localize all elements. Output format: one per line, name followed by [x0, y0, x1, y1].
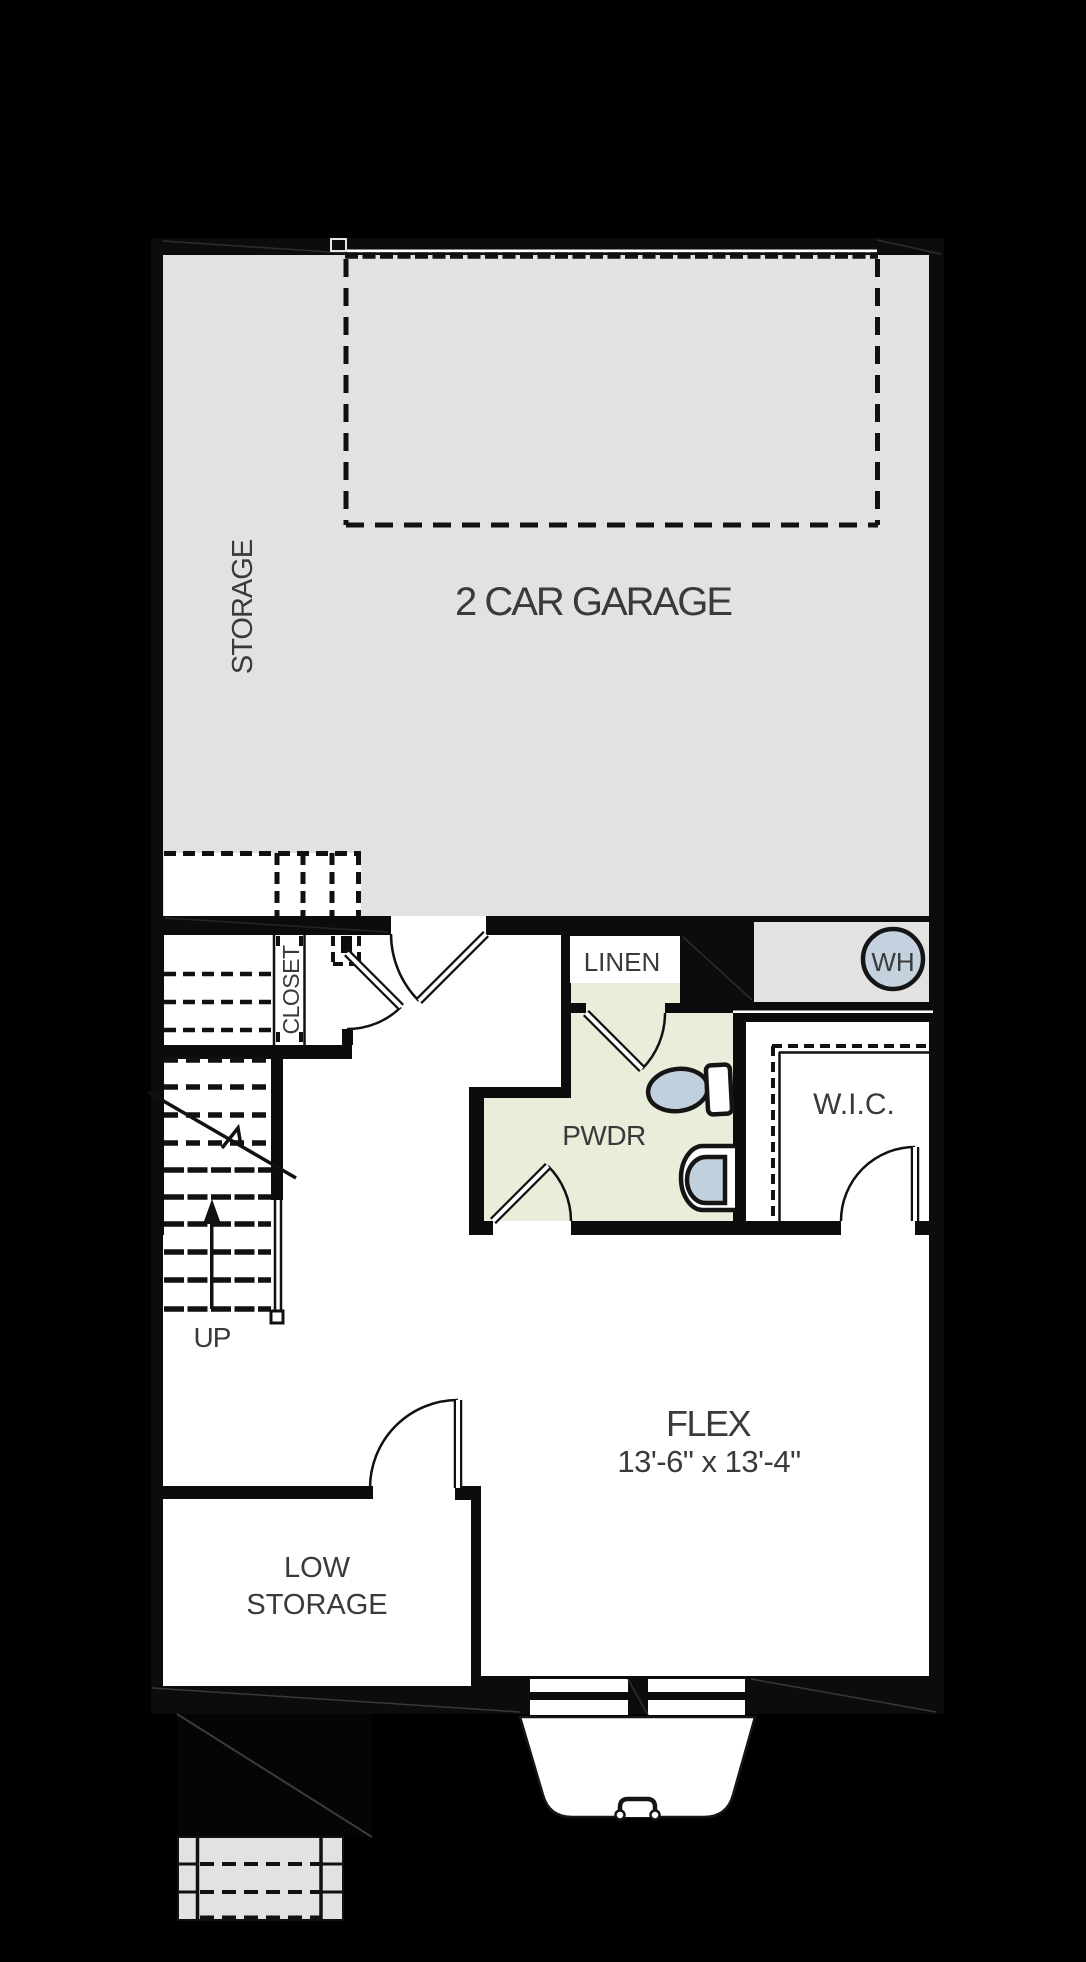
svg-text:W.I.C.: W.I.C.: [813, 1088, 895, 1121]
svg-text:LOW: LOW: [284, 1552, 351, 1584]
svg-text:STORAGE: STORAGE: [227, 539, 259, 674]
svg-text:UP: UP: [194, 1322, 231, 1353]
svg-text:2 CAR GARAGE: 2 CAR GARAGE: [455, 580, 731, 624]
svg-text:PWDR: PWDR: [562, 1120, 646, 1151]
svg-text:13'-6" x 13'-4": 13'-6" x 13'-4": [617, 1444, 800, 1479]
svg-text:FLEX: FLEX: [666, 1403, 752, 1444]
svg-text:CLOSET: CLOSET: [278, 945, 304, 1034]
svg-text:STORAGE: STORAGE: [246, 1589, 387, 1621]
svg-text:LINEN: LINEN: [584, 947, 661, 977]
svg-text:WH: WH: [871, 947, 914, 977]
